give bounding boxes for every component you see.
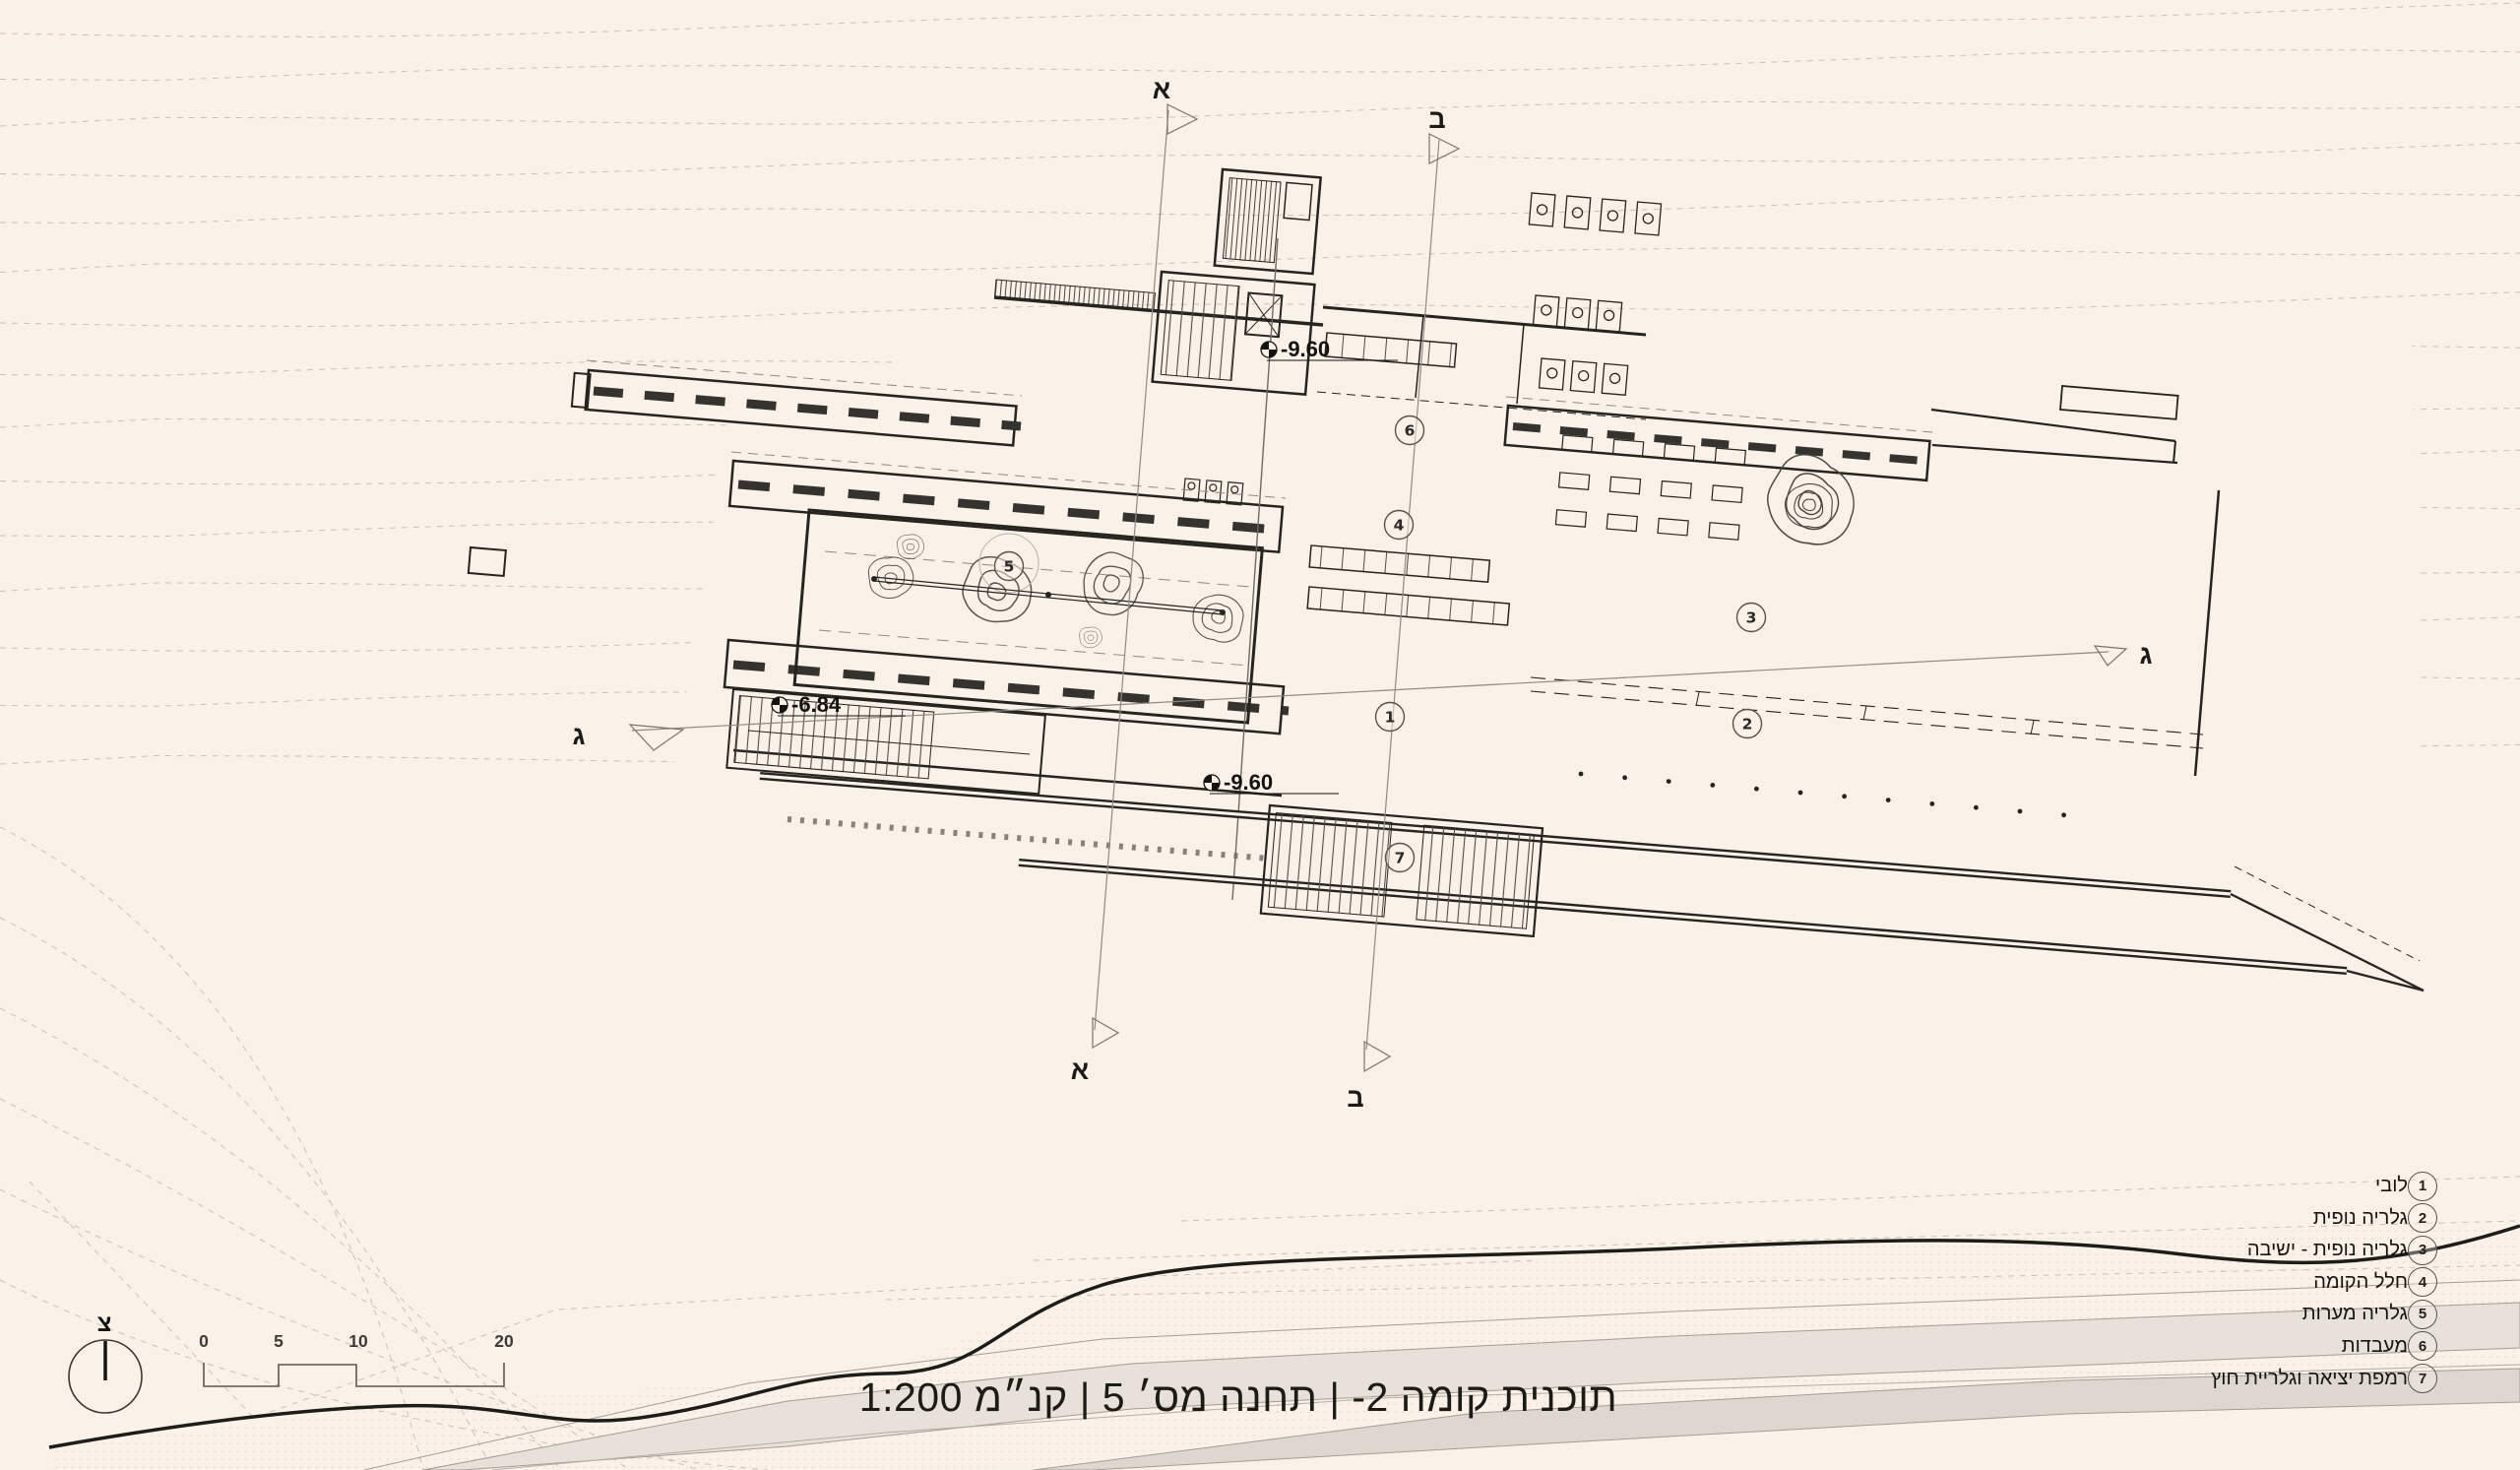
legend-item-3: 3 גלריה נופית - ישיבה [2201,1236,2437,1264]
north-compass: צ [69,1310,142,1413]
site-plan-drawing: א ב א ב ג ג -9.60 -6.84 -9.60 1 [0,0,2520,1470]
legend-label: לובי [2375,1175,2408,1197]
legend-item-2: 2 גלריה נופית [2201,1204,2437,1233]
legend-item-7: 7 רמפת יציאה וגלריית חוץ [2201,1365,2437,1393]
scale-label-5: 5 [274,1331,283,1351]
legend-label: גלריה נופית [2313,1207,2408,1230]
legend-num-badge: 5 [2408,1300,2437,1329]
section-letter-a-top: א [1153,75,1170,104]
room-marker-num: 6 [1405,422,1416,440]
room-marker-2: 2 [1733,710,1762,738]
room-marker-num: 5 [1004,558,1015,576]
legend: 1 לובי 2 גלריה נופית 3 גלריה נופית - ישי… [2201,1172,2437,1396]
legend-label: מעבדות [2342,1335,2408,1358]
section-letter-b-top: ב [1428,104,1445,134]
legend-label: גלריה נופית - ישיבה [2247,1239,2408,1261]
fixture-row-top [1529,193,1661,235]
scale-bar-shape [204,1363,504,1386]
legend-num-badge: 3 [2408,1236,2437,1265]
legend-num-badge: 1 [2408,1172,2437,1201]
legend-num-badge: 4 [2408,1267,2437,1297]
scale-label-0: 0 [199,1331,209,1351]
legend-num-badge: 6 [2408,1331,2437,1361]
room-marker-num: 4 [1394,517,1405,535]
room-marker-num: 7 [1395,850,1406,867]
room-marker-5: 5 [995,552,1024,581]
legend-num-badge: 2 [2408,1203,2437,1233]
room-marker-num: 2 [1742,716,1753,734]
section-letter-c-left: ג [573,721,586,750]
legend-label: רמפת יציאה וגלריית חוץ [2211,1368,2408,1390]
section-letter-a-bottom: א [1071,1055,1089,1085]
room-marker-num: 1 [1385,709,1396,727]
section-letter-c-right: ג [2140,640,2153,670]
room-marker-4: 4 [1385,511,1414,540]
level-value: -6.84 [791,692,842,717]
legend-item-1: 1 לובי [2201,1172,2437,1200]
room-marker-1: 1 [1376,703,1405,732]
legend-item-4: 4 חלל הקומה [2201,1268,2437,1297]
level-value: -9.60 [1224,770,1273,795]
compass-north-label: צ [97,1310,112,1337]
legend-num-badge: 7 [2408,1364,2437,1393]
architectural-sheet: { "colors": { "background": "#faf1e8", "… [0,0,2520,1470]
scale-label-20: 20 [494,1331,514,1351]
sheet-title: תוכנית קומה 2- | תחנה מס׳ 5 | קנ״מ 1:200 [859,1374,1617,1421]
room-marker-num: 3 [1746,609,1757,627]
scale-label-10: 10 [348,1331,368,1351]
level-value: -9.60 [1281,337,1330,361]
road-band [49,1224,2520,1470]
room-marker-7: 7 [1386,844,1415,872]
legend-item-6: 6 מעבדות [2201,1332,2437,1361]
legend-label: חלל הקומה [2313,1271,2408,1294]
legend-item-5: 5 גלריה מערות [2201,1300,2437,1328]
legend-label: גלריה מערות [2302,1303,2408,1325]
room-marker-6: 6 [1396,416,1424,445]
room-marker-3: 3 [1737,604,1766,632]
scale-bar: 0 5 10 20 [199,1331,514,1386]
section-letter-b-bottom: ב [1347,1083,1363,1113]
